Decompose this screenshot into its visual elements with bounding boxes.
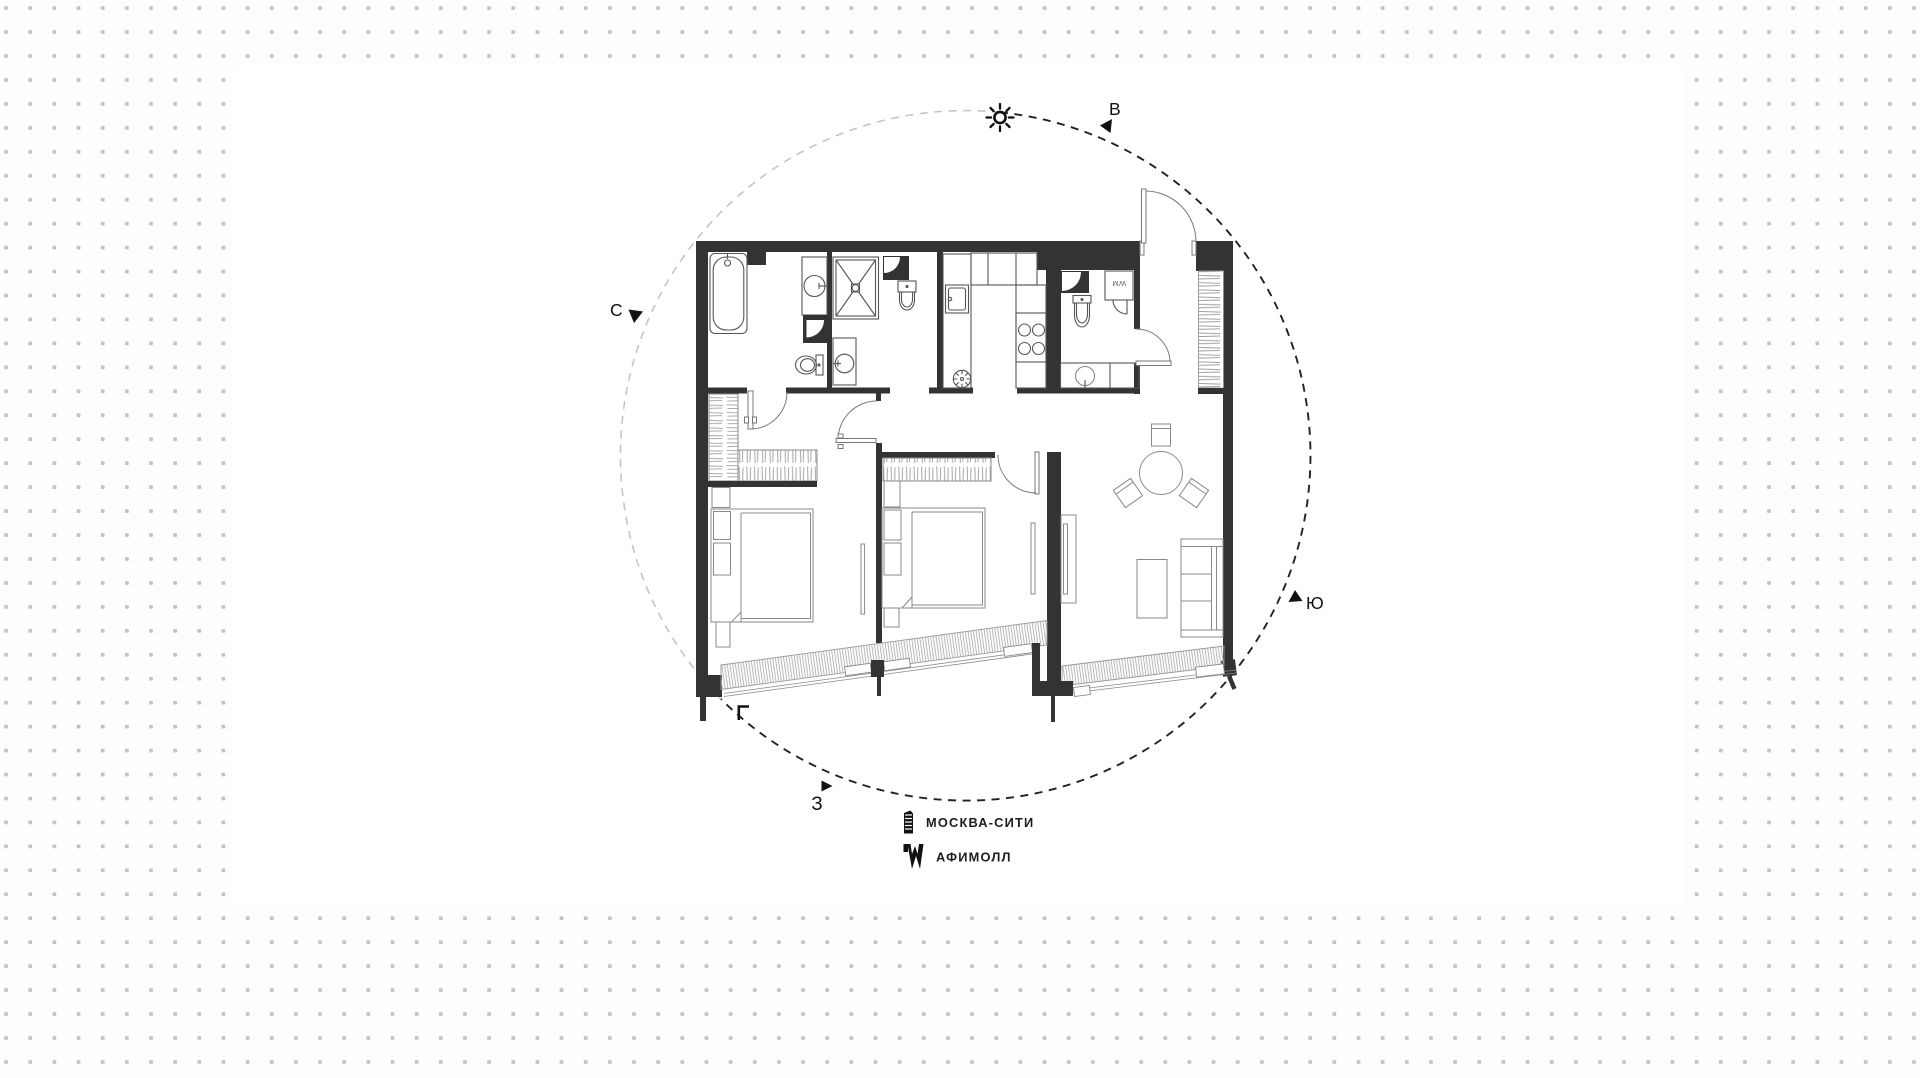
- svg-text:З: З: [811, 794, 822, 815]
- svg-text:МОСКВА-СИТИ: МОСКВА-СИТИ: [926, 815, 1034, 830]
- svg-text:С: С: [610, 300, 623, 320]
- svg-text:Ю: Ю: [1306, 593, 1324, 613]
- svg-text:В: В: [1109, 99, 1121, 119]
- svg-text:АФИМОЛЛ: АФИМОЛЛ: [936, 850, 1012, 865]
- svg-text:WM: WM: [1112, 279, 1126, 288]
